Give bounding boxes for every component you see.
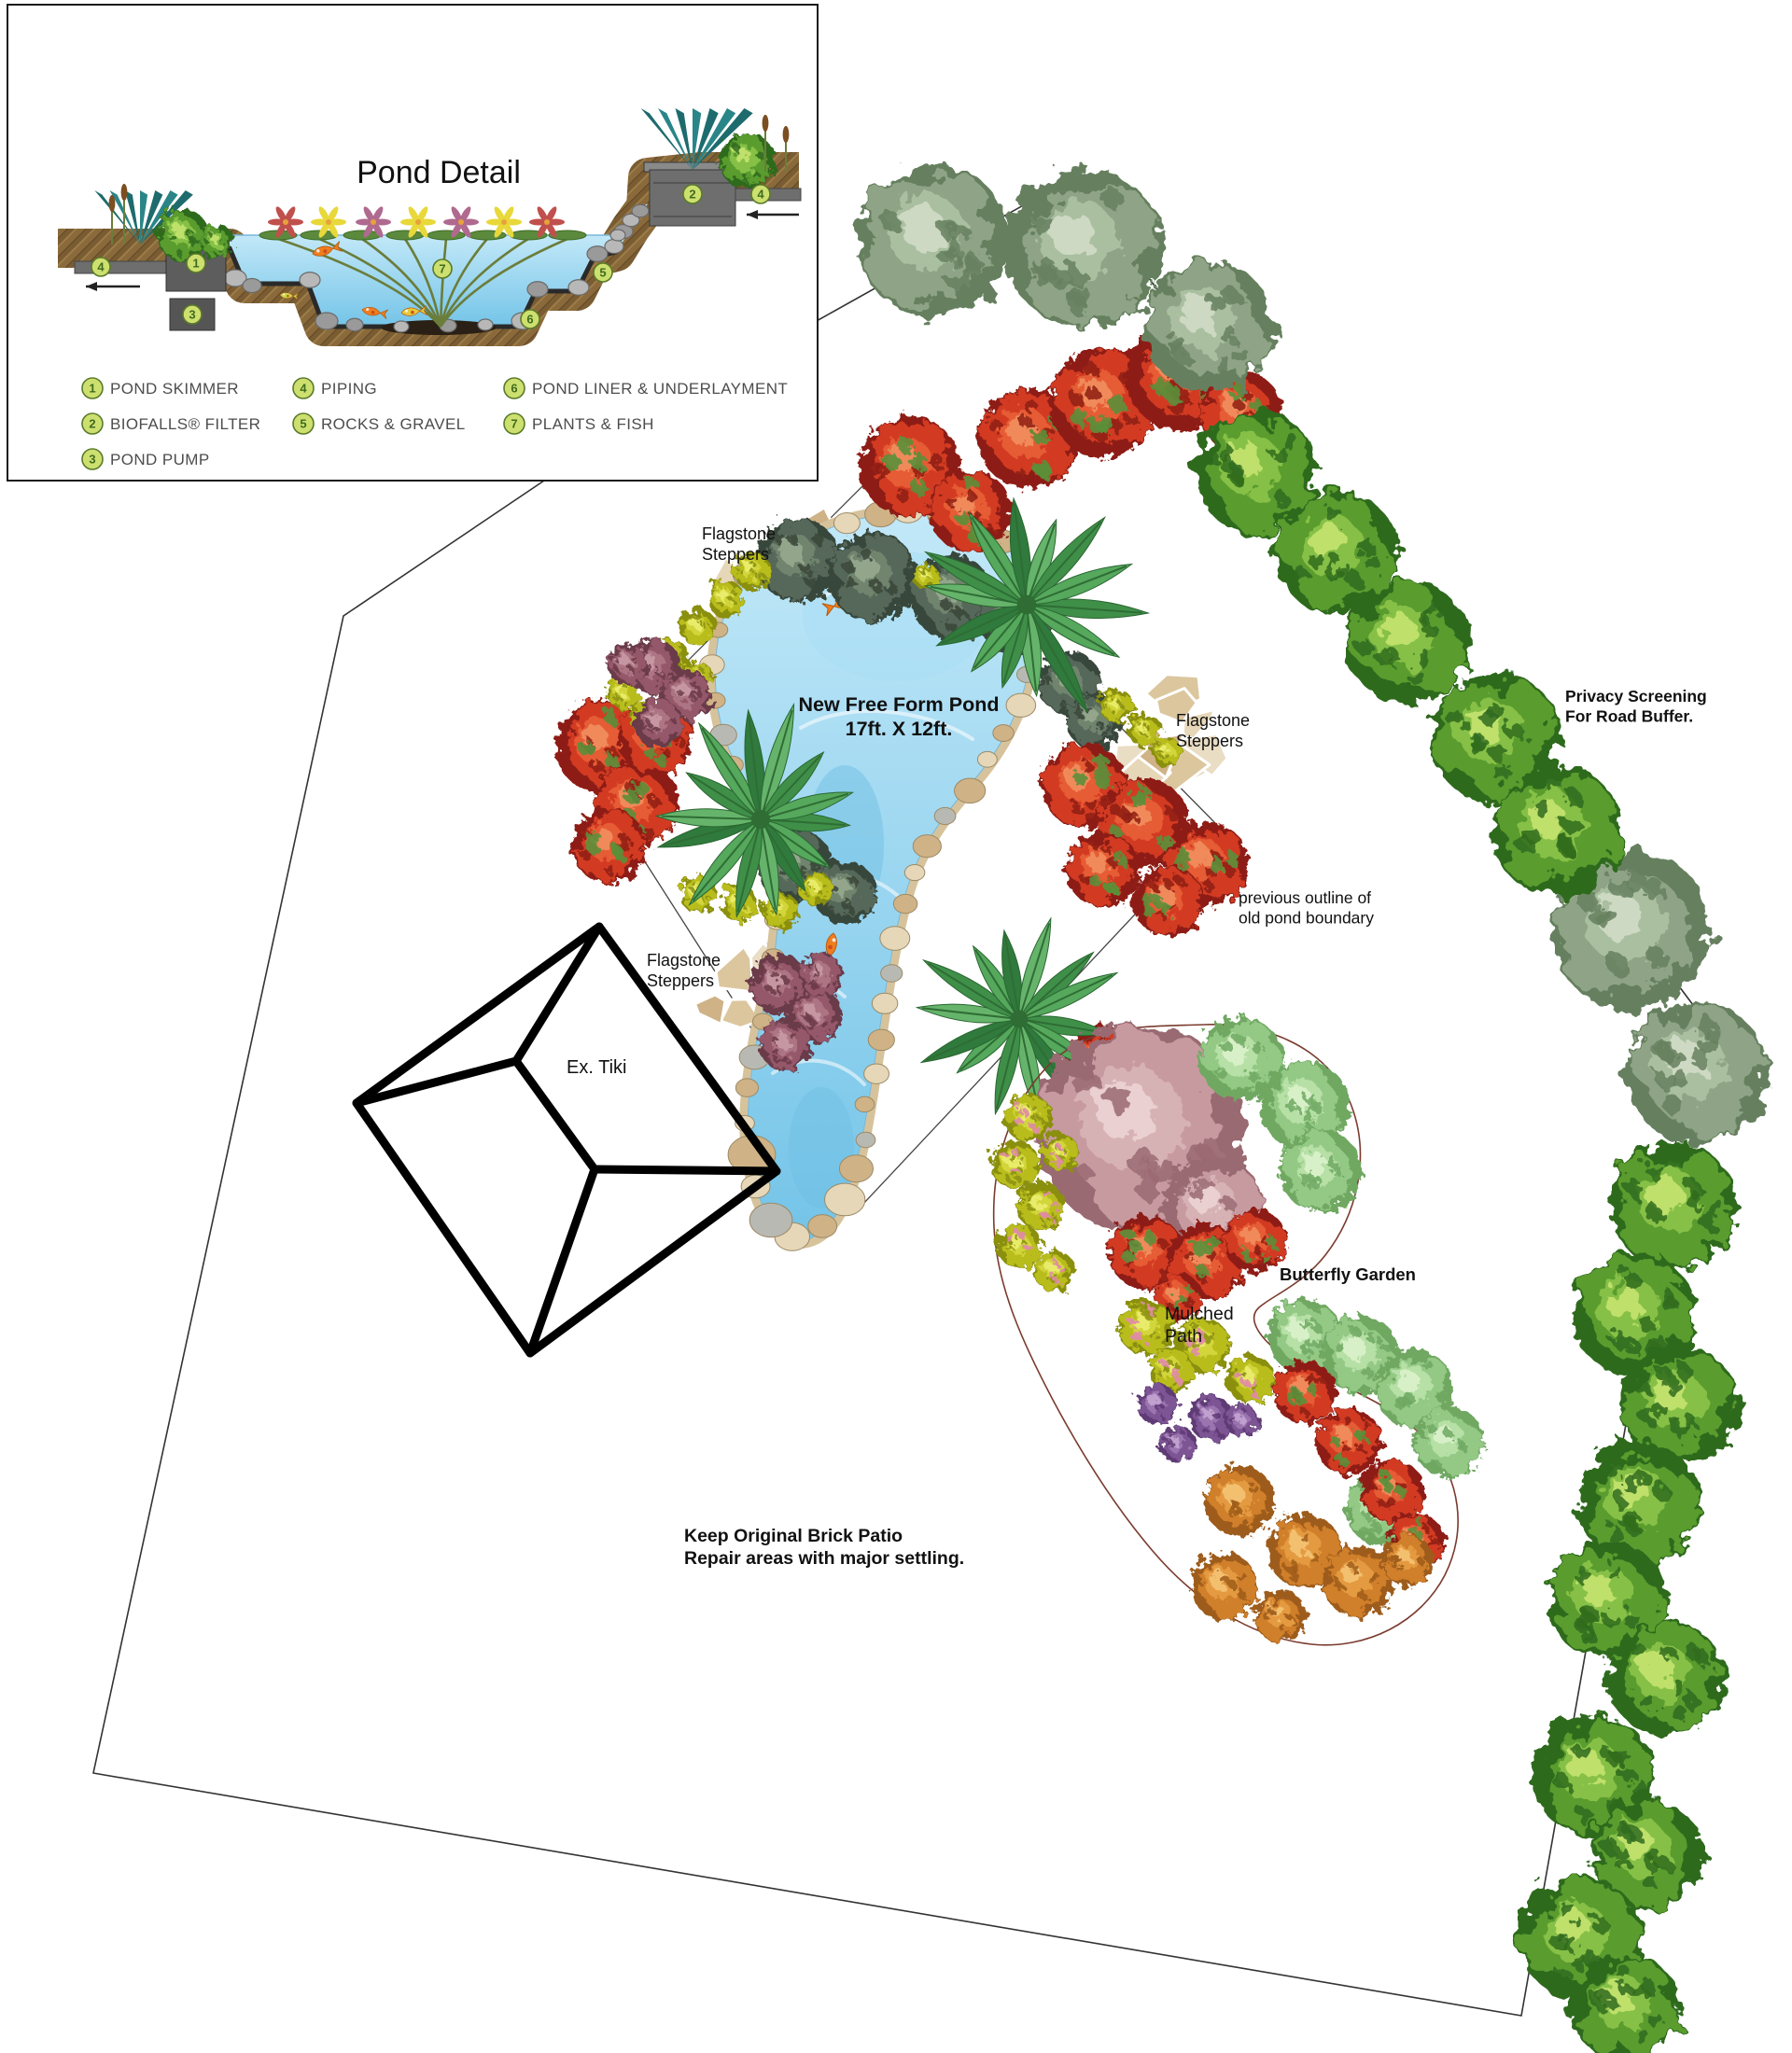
callout-4: 4 bbox=[91, 258, 110, 276]
svg-text:2: 2 bbox=[689, 188, 695, 202]
red-plant bbox=[1315, 1408, 1382, 1475]
yellowpink-plant bbox=[1004, 1094, 1053, 1142]
orange-plant bbox=[1381, 1534, 1434, 1586]
lily-pad bbox=[343, 230, 381, 240]
callout-3: 3 bbox=[183, 305, 202, 324]
cattail bbox=[121, 184, 128, 201]
red-plant bbox=[1361, 1459, 1424, 1523]
legend-label: PLANTS & FISH bbox=[532, 415, 654, 433]
red-shrub bbox=[1133, 866, 1204, 937]
cattail bbox=[763, 115, 769, 132]
red-shrub bbox=[1066, 832, 1141, 907]
cattail bbox=[109, 195, 116, 212]
maroon-shrub bbox=[634, 699, 682, 747]
green-privacy-tree bbox=[1608, 1620, 1724, 1736]
flagstone-steppers-1: FlagstoneSteppers bbox=[702, 524, 776, 564]
yellowpink-plant bbox=[1226, 1355, 1275, 1404]
sage-privacy-tree bbox=[857, 164, 1010, 317]
green-privacy-tree bbox=[1610, 1142, 1737, 1269]
pipe-left bbox=[75, 261, 168, 273]
purple-plant bbox=[1225, 1404, 1258, 1437]
svg-text:3: 3 bbox=[189, 308, 195, 322]
berm-grass-mound bbox=[200, 224, 233, 258]
rock bbox=[610, 230, 625, 241]
svg-text:4: 4 bbox=[97, 260, 105, 274]
rock bbox=[587, 246, 608, 262]
rock bbox=[478, 319, 493, 330]
fern-plant bbox=[1280, 1130, 1362, 1212]
lily-pad bbox=[427, 230, 465, 240]
rock bbox=[394, 321, 409, 332]
red-plant bbox=[1273, 1361, 1337, 1424]
rock bbox=[527, 282, 548, 298]
svg-text:6: 6 bbox=[511, 382, 517, 396]
svg-text:5: 5 bbox=[300, 417, 306, 431]
lily-pad bbox=[386, 230, 424, 240]
svg-text:6: 6 bbox=[526, 313, 533, 327]
butterfly-garden-label: Butterfly Garden bbox=[1280, 1264, 1416, 1284]
svg-text:7: 7 bbox=[439, 262, 445, 276]
purple-plant bbox=[1159, 1426, 1197, 1463]
red-plant bbox=[1224, 1209, 1287, 1273]
yellow-shrub bbox=[1099, 689, 1133, 722]
svg-text:5: 5 bbox=[599, 266, 606, 280]
orange-plant bbox=[1204, 1465, 1275, 1536]
legend-label: POND PUMP bbox=[110, 451, 210, 468]
callout-7: 7 bbox=[433, 259, 452, 278]
svg-text:4: 4 bbox=[757, 188, 764, 202]
yellowpink-plant bbox=[1042, 1134, 1079, 1171]
maroon-shrub bbox=[799, 953, 844, 998]
legend-label: PIPING bbox=[321, 380, 377, 398]
previous-outline-label: previous outline ofold pond boundary bbox=[1239, 888, 1374, 927]
green-privacy-tree bbox=[1491, 765, 1622, 896]
yellow-shrub bbox=[707, 580, 745, 618]
yellow-shrub bbox=[679, 608, 717, 646]
callout-1: 1 bbox=[187, 254, 205, 272]
legend-label: BIOFALLS® FILTER bbox=[110, 415, 260, 433]
legend-label: ROCKS & GRAVEL bbox=[321, 415, 466, 433]
cattail bbox=[783, 126, 790, 143]
darkleaf-shrub bbox=[828, 532, 917, 621]
tiki-roof-outline bbox=[357, 927, 777, 1353]
sage-privacy-tree bbox=[1143, 261, 1274, 392]
legend-label: POND SKIMMER bbox=[110, 380, 239, 398]
fern-plant bbox=[1413, 1406, 1484, 1477]
svg-text:2: 2 bbox=[89, 417, 95, 431]
yellowpink-plant bbox=[1016, 1181, 1065, 1230]
svg-text:7: 7 bbox=[511, 417, 517, 431]
red-shrub bbox=[930, 470, 1012, 552]
svg-text:4: 4 bbox=[300, 382, 307, 396]
yellow-shrub bbox=[762, 892, 799, 929]
tiki-roof-hip-line bbox=[516, 927, 599, 1061]
privacy-screening-label: Privacy ScreeningFor Road Buffer. bbox=[1565, 687, 1707, 725]
rock bbox=[632, 204, 649, 217]
callout-5: 5 bbox=[594, 263, 612, 282]
tiki-roof-hip-line bbox=[595, 1169, 777, 1171]
rock bbox=[315, 313, 338, 329]
yellowpink-plant bbox=[1034, 1250, 1075, 1292]
inset-title: Pond Detail bbox=[357, 155, 521, 190]
pond-detail-inset-layer: Pond Detail123445671POND SKIMMER2BIOFALL… bbox=[7, 5, 818, 481]
rock bbox=[568, 280, 589, 296]
legend-label: POND LINER & UNDERLAYMENT bbox=[532, 380, 788, 398]
sage-privacy-tree bbox=[1626, 1002, 1768, 1144]
legend-item-4: 4PIPING bbox=[293, 378, 377, 398]
svg-text:3: 3 bbox=[89, 453, 95, 467]
flagstone-steppers-2: FlagstoneSteppers bbox=[1176, 711, 1250, 750]
svg-text:1: 1 bbox=[89, 382, 95, 396]
orange-plant bbox=[1191, 1553, 1258, 1620]
green-privacy-tree bbox=[1346, 580, 1469, 704]
callout-2: 2 bbox=[683, 185, 702, 203]
yellow-shrub bbox=[1127, 713, 1161, 747]
svg-text:1: 1 bbox=[192, 257, 199, 271]
red-shrub bbox=[571, 808, 646, 883]
keep-patio-label: Keep Original Brick PatioRepair areas wi… bbox=[684, 1526, 964, 1569]
landscape-plan: FlagstoneSteppersFlagstoneSteppersFlagst… bbox=[0, 0, 1792, 2053]
butterfly-garden-layer bbox=[991, 1017, 1484, 1645]
maroon-shrub bbox=[607, 644, 648, 685]
callout-4: 4 bbox=[751, 185, 770, 203]
rock bbox=[300, 272, 320, 288]
flagstone-steppers-3: FlagstoneSteppers bbox=[647, 951, 721, 990]
sage-privacy-tree bbox=[1005, 169, 1164, 328]
legend-item-6: 6POND LINER & UNDERLAYMENT bbox=[504, 378, 788, 398]
tiki-structure-layer bbox=[357, 927, 777, 1353]
rock bbox=[346, 318, 363, 331]
yellowpink-plant bbox=[997, 1223, 1042, 1268]
ex-tiki-label: Ex. Tiki bbox=[567, 1057, 626, 1078]
rock bbox=[243, 279, 261, 293]
yellowpink-plant bbox=[991, 1140, 1040, 1189]
purple-plant bbox=[1137, 1384, 1178, 1425]
orange-plant bbox=[1254, 1590, 1307, 1642]
callout-6: 6 bbox=[521, 310, 539, 328]
rock bbox=[605, 240, 623, 254]
maroon-shrub bbox=[760, 1019, 812, 1071]
